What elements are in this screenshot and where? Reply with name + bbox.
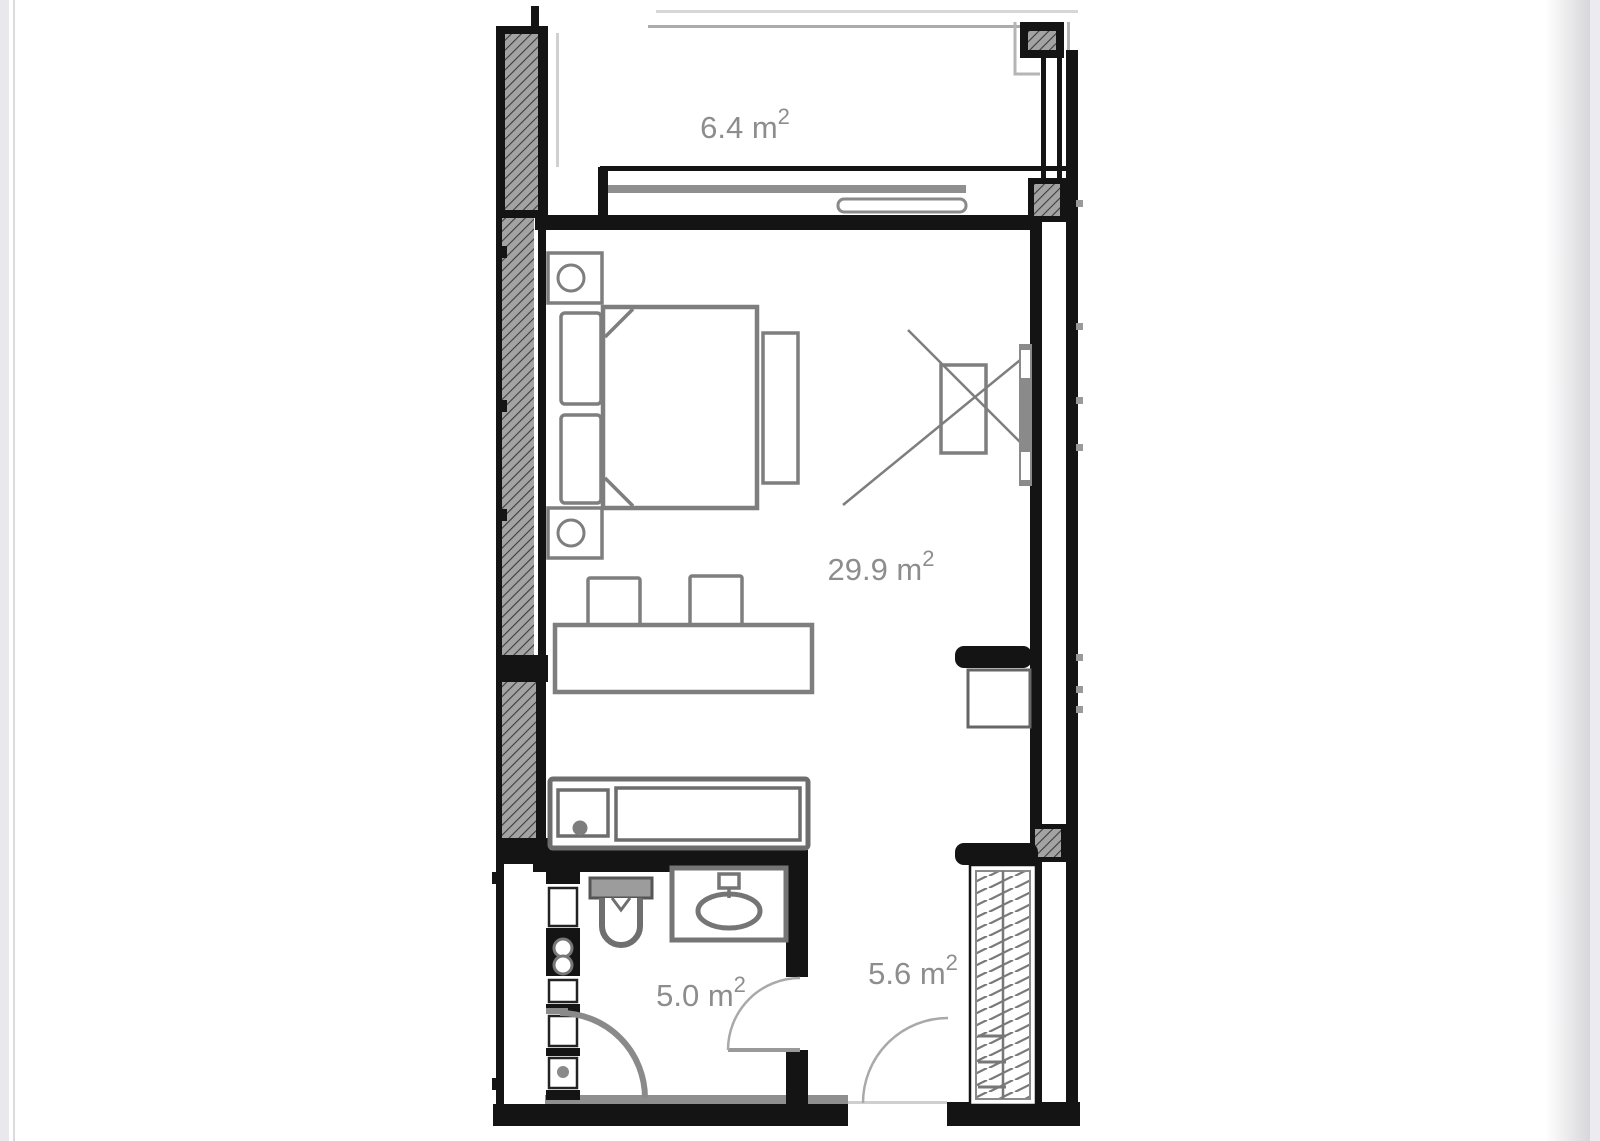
- pillow: [561, 415, 601, 503]
- bathroom-area-label: 5.0 m2: [656, 972, 746, 1013]
- wall-cabinet: [968, 670, 1030, 727]
- tv: [941, 365, 986, 453]
- lamp-icon: [558, 520, 584, 546]
- stool: [690, 576, 742, 625]
- pillow: [561, 313, 601, 404]
- cabinet: [968, 670, 1030, 727]
- sleeping-area: [548, 253, 798, 558]
- hallway-area-label: 5.6 m2: [868, 950, 958, 991]
- balcony-area-label: 6.4 m2: [700, 104, 790, 145]
- bed: [603, 307, 757, 508]
- living-room-area-label: 29.9 m2: [827, 546, 934, 587]
- kitchen-area: [550, 779, 808, 848]
- floor-plan-page: 6.4 m2 29.9 m2 5.0 m2 5.6 m2: [0, 0, 1600, 1141]
- tv-unit: [843, 330, 1032, 505]
- stool: [588, 578, 640, 625]
- desk-area: [555, 576, 812, 692]
- pipe-icon: [554, 939, 572, 957]
- tv-sight-line: [843, 352, 1030, 505]
- pipe-icon: [554, 956, 572, 974]
- bench: [763, 333, 798, 483]
- toilet: [602, 898, 640, 945]
- tv-sight-line: [908, 330, 1030, 452]
- sliding-panel: [838, 199, 966, 212]
- entrance-door-swing: [863, 1018, 948, 1103]
- balcony-sliding-door: [598, 166, 1078, 216]
- toilet-tank: [590, 878, 652, 898]
- counter-top: [616, 788, 800, 840]
- desk: [555, 625, 812, 692]
- faucet-icon: [573, 821, 588, 836]
- technical-shaft: [546, 856, 580, 1100]
- floor-plan-image: 6.4 m2 29.9 m2 5.0 m2 5.6 m2: [0, 0, 1600, 1141]
- washbasin: [698, 894, 760, 928]
- drain-icon: [557, 1066, 569, 1078]
- lamp-icon: [558, 265, 584, 291]
